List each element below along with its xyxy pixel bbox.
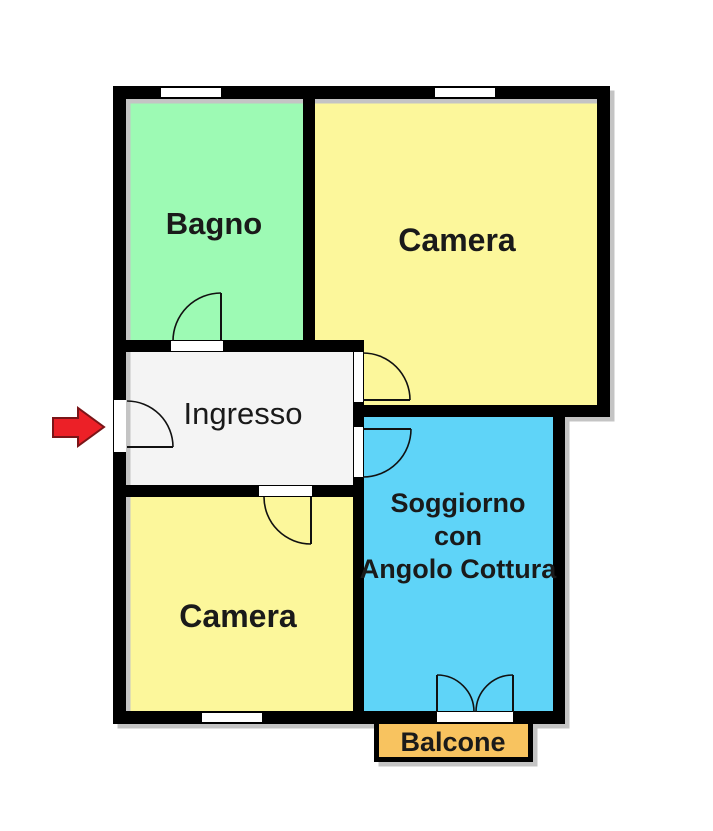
label-soggiorno-line1: Soggiorno: [391, 488, 526, 518]
floorplan-svg: Bagno Camera Ingresso Camera Soggiorno c…: [0, 0, 713, 831]
wall-ingresso-bottom: [113, 485, 364, 497]
label-balcone: Balcone: [400, 727, 505, 757]
entrance-arrow-icon: [53, 408, 104, 446]
label-ingresso: Ingresso: [184, 396, 303, 431]
window-bagno-top: [161, 88, 221, 97]
doorway-camera-bottom: [259, 486, 312, 496]
label-bagno: Bagno: [166, 206, 262, 241]
doorway-soggiorno: [354, 427, 363, 477]
wall-camera-soggiorno: [353, 405, 565, 417]
label-camera-top: Camera: [398, 222, 516, 258]
doorway-camera-top: [354, 352, 363, 402]
doorway-bagno: [171, 341, 223, 351]
window-camera-bottom: [202, 713, 262, 722]
wall-right-upper: [597, 86, 610, 417]
wall-bagno-camera: [303, 99, 315, 352]
window-camera-top: [435, 88, 495, 97]
label-soggiorno-line3: Angolo Cottura: [360, 554, 557, 584]
floorplan-canvas: Bagno Camera Ingresso Camera Soggiorno c…: [0, 0, 713, 831]
label-soggiorno-line2: con: [434, 521, 482, 551]
label-camera-bottom: Camera: [179, 598, 297, 634]
wall-ingresso-top: [113, 340, 364, 352]
entrance-doorway: [114, 400, 126, 452]
balcone-threshold: [437, 712, 513, 722]
